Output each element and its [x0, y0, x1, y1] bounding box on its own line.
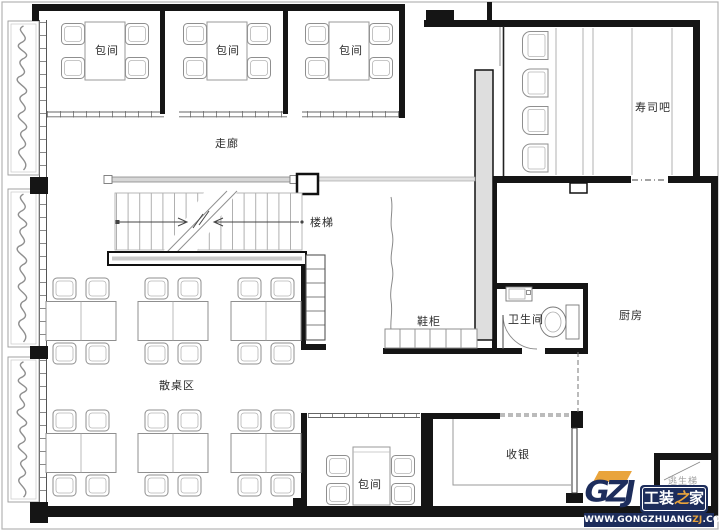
url-accent: ZJ	[692, 515, 702, 525]
corridor-partition	[47, 109, 399, 119]
shoe-cabinet-label: 鞋柜	[417, 314, 441, 328]
watermark-brand-text: 工装之家	[642, 487, 706, 511]
url-post: .COM	[702, 515, 720, 525]
watermark-url: WWW.GONGZHUANGZJ.COM	[584, 513, 714, 527]
cashier-area: 收银	[453, 416, 577, 493]
curtain-line	[391, 197, 393, 330]
bar-seat	[523, 144, 549, 172]
chair	[392, 456, 415, 477]
sushi-bar: 寿司吧	[500, 26, 672, 176]
divider-wall	[475, 70, 493, 340]
table-group	[231, 410, 301, 496]
entry-area: 鞋柜	[385, 197, 477, 348]
bar-seat	[523, 107, 549, 135]
chair	[392, 484, 415, 505]
brand-accent: 之	[674, 489, 689, 507]
url-pre: WWW.GONGZHUANG	[584, 515, 692, 525]
watermark-brand-box: 工装之家	[640, 485, 708, 513]
logo-abbr: GZJ	[581, 478, 634, 507]
bar-seat	[523, 32, 549, 60]
private-room-4: 包间	[308, 414, 420, 506]
room-table	[353, 447, 390, 505]
stairs-label: 楼梯	[310, 215, 334, 229]
table-group	[138, 410, 208, 496]
private-room-1: 包间	[62, 22, 149, 80]
room-label: 包间	[216, 44, 240, 57]
planter-boxes	[8, 21, 39, 502]
table-group	[46, 410, 116, 496]
room-label: 包间	[339, 44, 363, 57]
bar-seat	[523, 69, 549, 97]
table-group	[231, 278, 301, 364]
wall-pilaster	[570, 183, 587, 193]
table-group	[138, 278, 208, 364]
room-label: 包间	[95, 44, 119, 57]
watermark: GZJ 工装之家 WWW.GONGZHUANGZJ.COM	[584, 470, 715, 528]
gzj-logo-icon: GZJ	[584, 470, 642, 516]
private-room-2: 包间	[184, 22, 271, 80]
corridor-label: 走廊	[215, 136, 239, 150]
toilet-tank	[566, 305, 579, 339]
shoe-cabinet	[385, 329, 477, 348]
table-group	[46, 278, 116, 364]
restroom-label: 卫生间	[508, 312, 544, 326]
brand-post: 家	[689, 489, 704, 507]
room-label: 包间	[358, 478, 382, 491]
stair-railing	[104, 174, 475, 194]
column	[297, 174, 318, 194]
left-window-wall	[40, 20, 47, 506]
kitchen-label: 厨房	[619, 309, 643, 322]
stairs: 楼梯	[115, 191, 334, 252]
restroom: 卫生间	[503, 287, 579, 349]
sushi-bar-label: 寿司吧	[635, 100, 671, 114]
floor-plan-drawing: 包间 包间 包间 走廊 楼梯	[0, 0, 720, 531]
shelf-divider	[306, 255, 325, 340]
private-room-3: 包间	[306, 22, 393, 80]
cashier-label: 收银	[506, 447, 530, 461]
floor-plan: 包间 包间 包间 走廊 楼梯	[0, 0, 720, 531]
chair	[327, 456, 350, 477]
open-dining-label: 散桌区	[159, 378, 195, 392]
chair	[327, 484, 350, 505]
brand-pre: 工装	[644, 489, 674, 507]
open-dining-area: 散桌区	[46, 252, 325, 496]
